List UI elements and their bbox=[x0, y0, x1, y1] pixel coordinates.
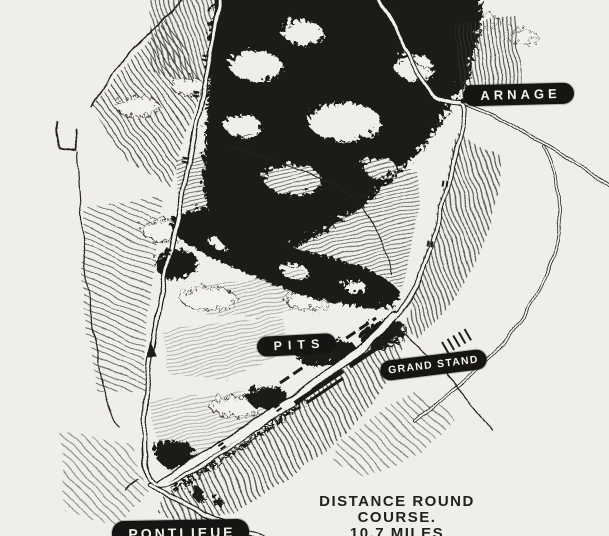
label-pontlieue: PONTLIEUE bbox=[112, 519, 249, 536]
label-pits: PITS bbox=[257, 333, 337, 357]
caption-line-2: COURSE. bbox=[302, 510, 492, 526]
label-arnage: ARNAGE bbox=[463, 83, 575, 107]
label-pontlieue-text: PONTLIEUE bbox=[128, 524, 235, 536]
caption-line-3: 10.7 MILES bbox=[302, 526, 492, 536]
label-arnage-text: ARNAGE bbox=[480, 86, 561, 103]
caption-line-1: DISTANCE ROUND bbox=[302, 494, 492, 510]
scanned-course-map: ARNAGE PITS GRAND STAND PONTLIEUE DISTAN… bbox=[0, 0, 609, 536]
label-pits-text: PITS bbox=[273, 336, 325, 353]
distance-caption: DISTANCE ROUND COURSE. 10.7 MILES bbox=[302, 494, 492, 536]
course-map-drawing bbox=[0, 0, 609, 536]
